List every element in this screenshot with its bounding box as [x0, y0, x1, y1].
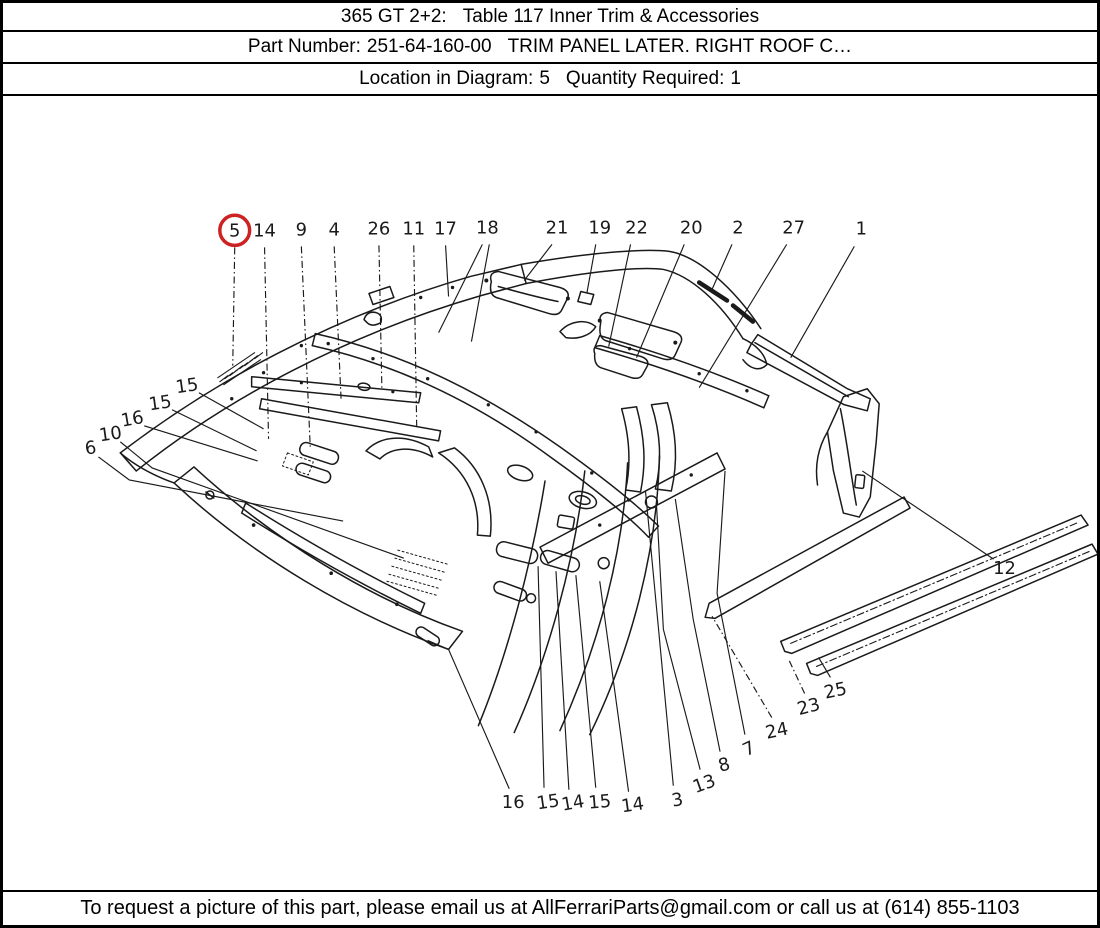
- callout-number-21: 21: [546, 217, 569, 238]
- callout-number-19: 19: [588, 217, 611, 238]
- callout-number-12: 12: [993, 558, 1016, 579]
- callout-number-23: 23: [795, 694, 822, 720]
- leader-line-8: [675, 499, 720, 752]
- roof-edge: [521, 250, 767, 368]
- leader-line-1: [791, 246, 855, 357]
- callout-number-4: 4: [328, 219, 339, 240]
- callout-number-6: 6: [83, 437, 97, 459]
- callout-number-14: 14: [560, 791, 586, 816]
- callout-number-2: 2: [732, 217, 743, 238]
- leader-line-14: [600, 581, 629, 792]
- quarter-panel: [817, 389, 880, 517]
- model-name: 365 GT 2+2:: [341, 6, 447, 28]
- callout-number-15: 15: [174, 374, 199, 398]
- catalog-page: 365 GT 2+2:Table 117 Inner Trim & Access…: [0, 0, 1100, 928]
- leader-line-20: [637, 244, 685, 357]
- leader-line-16: [428, 640, 510, 788]
- spring-part: [218, 353, 263, 385]
- callout-number-8: 8: [716, 753, 732, 776]
- callout-number-16: 16: [502, 792, 525, 813]
- leader-line-24: [712, 616, 772, 717]
- bracket-cluster: [282, 438, 609, 603]
- leader-line-2: [711, 244, 732, 291]
- quantity-label: Quantity Required:: [566, 68, 724, 90]
- callout-number-18: 18: [476, 217, 499, 238]
- leader-line-15: [538, 566, 544, 788]
- leader-line-19: [587, 244, 596, 293]
- leader-line-6: [98, 457, 343, 521]
- location-value: 5: [539, 68, 550, 90]
- leader-line-13: [656, 503, 700, 770]
- callout-number-25: 25: [822, 678, 849, 703]
- quantity-value: 1: [730, 68, 741, 90]
- leader-line-9: [301, 246, 310, 449]
- leader-line-10: [120, 442, 403, 558]
- sill-strips: [705, 497, 1097, 675]
- trim-strip-1: [747, 335, 870, 411]
- callout-number-16: 16: [119, 407, 145, 432]
- leader-line-18: [471, 244, 489, 341]
- grab-handle: [560, 322, 596, 338]
- callout-number-24: 24: [764, 718, 791, 743]
- location-label: Location in Diagram:: [359, 68, 533, 90]
- leader-line-22: [609, 244, 631, 346]
- windshield-lower-rails: [252, 377, 441, 441]
- windshield-header: [120, 264, 526, 483]
- leader-line-14: [556, 571, 569, 790]
- title-row: 365 GT 2+2:Table 117 Inner Trim & Access…: [3, 3, 1097, 32]
- callout-number-14: 14: [253, 220, 276, 241]
- callout-number-15: 15: [147, 391, 172, 415]
- callout-number-9: 9: [296, 219, 307, 240]
- callout-number-27: 27: [782, 217, 805, 238]
- leader-line-12: [862, 471, 993, 559]
- callout-number-22: 22: [625, 217, 648, 238]
- roof-bow: [312, 334, 658, 538]
- leader-line-21: [524, 244, 552, 280]
- clip-19: [578, 291, 594, 304]
- callout-number-1: 1: [856, 218, 867, 239]
- front-header-panel: [174, 467, 462, 649]
- callout-number-3: 3: [670, 789, 685, 812]
- leader-line-7: [717, 471, 745, 735]
- callout-layer: 5149426111718211922202271151516106161514…: [83, 215, 1015, 817]
- callout-number-14: 14: [620, 793, 645, 817]
- leader-line-23: [789, 659, 805, 693]
- callout-number-15: 15: [588, 791, 613, 814]
- part-number-label: Part Number:: [248, 36, 361, 58]
- cant-rails: [540, 336, 769, 564]
- leader-line-3: [645, 491, 673, 786]
- callout-number-10: 10: [98, 422, 123, 446]
- leader-line-17: [446, 245, 449, 296]
- callout-number-5: 5: [229, 220, 240, 241]
- parts-diagram: 5149426111718211922202271151516106161514…: [3, 96, 1097, 890]
- callout-number-15: 15: [535, 790, 560, 814]
- contact-footer: To request a picture of this part, pleas…: [3, 890, 1097, 925]
- diagram-svg: 5149426111718211922202271151516106161514…: [3, 96, 1097, 890]
- callout-number-26: 26: [368, 218, 391, 239]
- part-description: TRIM PANEL LATER. RIGHT ROOF C…: [508, 36, 853, 58]
- leader-line-15: [576, 575, 596, 788]
- callout-number-20: 20: [680, 217, 703, 238]
- leader-line-5: [233, 247, 235, 365]
- location-row: Location in Diagram:5Quantity Required:1: [3, 64, 1097, 96]
- part-number-value: 251-64-160-00: [367, 36, 492, 58]
- leader-line-11: [414, 245, 417, 428]
- callout-number-11: 11: [402, 218, 425, 239]
- callout-number-13: 13: [690, 770, 719, 798]
- callout-number-17: 17: [434, 218, 457, 239]
- table-title: Table 117 Inner Trim & Accessories: [463, 6, 759, 28]
- part-number-row: Part Number:251-64-160-00TRIM PANEL LATE…: [3, 32, 1097, 64]
- callout-number-7: 7: [740, 737, 759, 761]
- contact-text: To request a picture of this part, pleas…: [80, 897, 1019, 920]
